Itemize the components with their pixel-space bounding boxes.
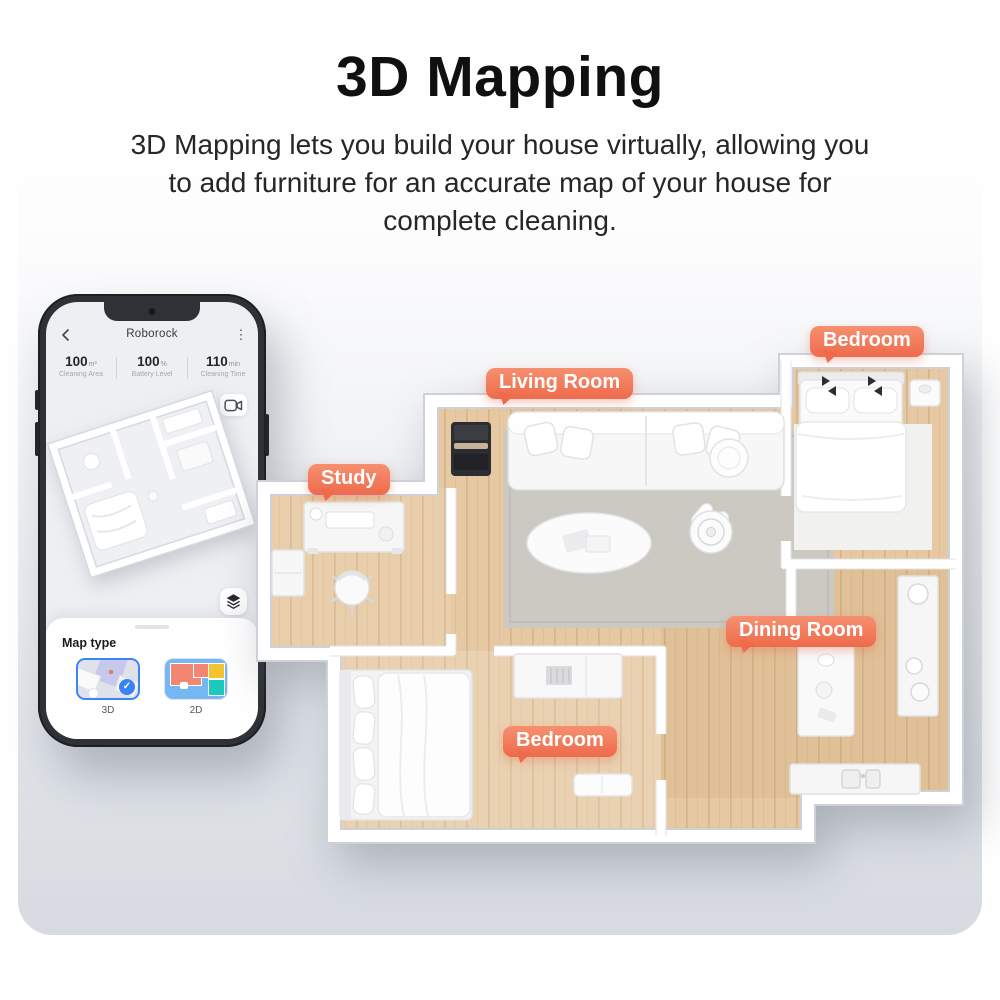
check-icon: ✓ <box>119 679 135 695</box>
map-type-title: Map type <box>62 636 116 650</box>
phone-screen: Roborock ⋮ 100m² Cleaning Area 100% Batt… <box>46 302 258 739</box>
app-header: Roborock ⋮ <box>46 326 258 346</box>
map-type-label-2d: 2D <box>164 705 228 716</box>
subtitle-line-1: 3D Mapping lets you build your house vir… <box>0 126 1000 164</box>
side-table <box>710 439 748 477</box>
map-type-sheet: Map type ✓ 3D <box>46 618 258 739</box>
room-label-living-room: Living Room <box>486 368 633 399</box>
sideboard <box>514 654 622 698</box>
bed-bottom <box>340 670 472 820</box>
phone-volume-button <box>35 422 39 456</box>
desk <box>304 502 404 554</box>
thumb-3d-robot <box>88 688 99 699</box>
study-cabinet <box>272 550 304 596</box>
room-label-bedroom-bottom: Bedroom <box>503 726 617 757</box>
thumb-2d-dock <box>180 682 188 689</box>
thumb-2d-room-yellow <box>208 663 225 679</box>
phone-mute-switch <box>35 390 39 410</box>
front-camera-dot <box>149 308 156 315</box>
phone-3d-map-preview <box>46 366 258 610</box>
map-type-option-3d[interactable]: ✓ <box>76 658 140 700</box>
bench <box>574 774 632 796</box>
room-label-dining-room: Dining Room <box>726 616 876 647</box>
app-title: Roborock <box>46 328 258 340</box>
phone-notch <box>104 302 200 321</box>
layers-icon <box>225 593 242 610</box>
map-type-option-2d-wrap: 2D <box>164 658 228 716</box>
room-label-bedroom-top: Bedroom <box>810 326 924 357</box>
bed-top <box>796 372 906 512</box>
layers-button[interactable] <box>220 588 247 615</box>
room-label-study: Study <box>308 464 390 495</box>
thumb-3d-accent <box>109 670 113 674</box>
subtitle-line-2: to add furniture for an accurate map of … <box>0 164 1000 202</box>
floorplan-illustration <box>246 336 968 848</box>
thumb-2d-room-teal <box>208 679 225 696</box>
drag-handle[interactable] <box>135 625 169 629</box>
phone-mockup: Roborock ⋮ 100m² Cleaning Area 100% Batt… <box>38 294 266 747</box>
page-title: 3D Mapping <box>0 44 1000 110</box>
dock-station <box>451 422 491 476</box>
dining-table <box>798 642 854 736</box>
coffee-table <box>527 513 651 573</box>
subtitle-line-3: complete cleaning. <box>0 202 1000 240</box>
map-type-option-2d[interactable] <box>164 658 228 700</box>
nightstand <box>910 380 940 406</box>
map-type-option-3d-wrap: ✓ 3D <box>76 658 140 716</box>
map-type-options: ✓ 3D 2D <box>46 658 258 716</box>
page: 3D Mapping 3D Mapping lets you build you… <box>0 0 1000 1000</box>
page-subtitle: 3D Mapping lets you build your house vir… <box>0 126 1000 240</box>
map-type-label-3d: 3D <box>76 705 140 716</box>
robot-vacuum <box>690 511 732 553</box>
